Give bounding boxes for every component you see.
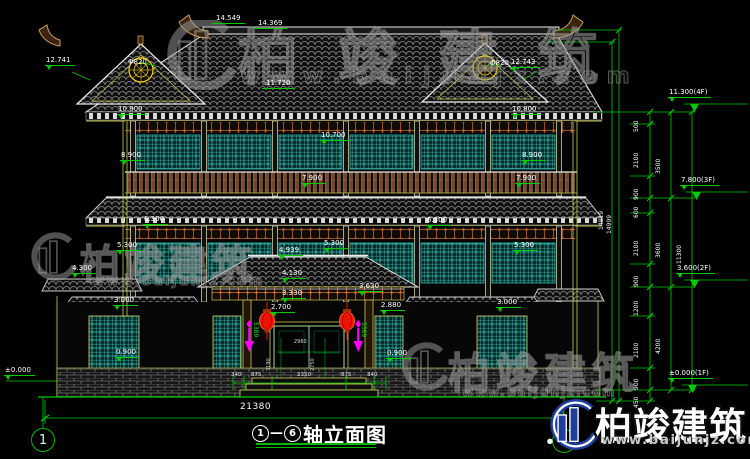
height-dim-label: 500 xyxy=(634,121,640,132)
brand-logo-icon xyxy=(539,392,599,458)
floor-level-label: 3.600(2F) xyxy=(676,264,715,274)
height-dim-label: 3500 xyxy=(656,159,662,174)
elevation-label: 4.130 xyxy=(281,269,306,279)
width-dim-label: 340 xyxy=(231,373,242,379)
elevation-label: 2.880 xyxy=(380,301,405,311)
width-dim-label: 2350 xyxy=(297,373,311,379)
height-dim-label: 900 xyxy=(634,189,640,200)
axis-number: 1 xyxy=(39,433,47,448)
door-dim-label: 2750 xyxy=(311,358,316,371)
title-axis-to: 6 xyxy=(284,425,301,442)
total-height-label: 14819 xyxy=(599,211,605,230)
elevation-label: 5.300 xyxy=(323,239,348,249)
elevation-label: 10.800 xyxy=(511,105,541,115)
section-mark-label: 5389 xyxy=(360,322,366,337)
title-axis-from: 1 xyxy=(252,425,269,442)
brand-url: www.baijunjz.com xyxy=(601,432,750,448)
elevation-label: 0.900 xyxy=(115,348,140,358)
cad-elevation-screenshot: 柏竣建筑 www.baijunjz.com 柏竣建筑 www.baijunjz.… xyxy=(0,0,750,459)
door-dim-label: 3190 xyxy=(267,358,272,371)
floor-level-label: 7.800(3F) xyxy=(680,176,719,186)
height-dim-label: 600 xyxy=(634,207,640,218)
elevation-label: 4.939 xyxy=(278,246,303,256)
height-dim-label: 2100 xyxy=(634,241,640,256)
door-dim-label: 2960 xyxy=(294,340,307,345)
height-dim-label: 11300 xyxy=(677,245,683,264)
railing-3f xyxy=(125,172,577,193)
elevation-label: 2.700 xyxy=(270,303,295,313)
height-dim-label: 2100 xyxy=(634,153,640,168)
wing-roof-right xyxy=(532,289,604,301)
elevation-label: 12.743 xyxy=(510,58,540,68)
height-dim-label: 900 xyxy=(634,379,640,390)
frieze-2f xyxy=(125,228,575,239)
section-mark-label: 5389 xyxy=(252,322,258,337)
brand-block: 柏竣建筑 www.baijunjz.com xyxy=(543,390,750,459)
height-dim-label: 3600 xyxy=(656,243,662,258)
height-dim-label: 4200 xyxy=(656,339,662,354)
floor-3 xyxy=(125,121,577,196)
elevation-label: 5.300 xyxy=(116,241,141,251)
elevation-label: 6.300 xyxy=(426,216,451,226)
elevation-label: 10.800 xyxy=(117,105,147,115)
elevation-label: 3.630 xyxy=(358,282,383,292)
elevation-label: 6.300 xyxy=(143,215,168,225)
elevation-label: 7.900 xyxy=(515,174,540,184)
title-underline xyxy=(256,443,376,445)
title-underline-2 xyxy=(256,447,376,448)
elevation-label: 3.000 xyxy=(113,296,138,306)
axis-bubble-1: 1 xyxy=(31,428,55,452)
ridge-height-label: 14.369 xyxy=(254,19,287,29)
corner-hook-left xyxy=(39,25,60,46)
width-dim-label: 875 xyxy=(341,373,352,379)
elevation-label: 10.700 xyxy=(320,131,350,141)
entrance-steps xyxy=(240,378,378,397)
elevation-label: 3.330 xyxy=(281,289,306,299)
width-dim-label: 340 xyxy=(367,373,378,379)
elevation-label: 8.900 xyxy=(120,151,145,161)
elevation-label: 0.900 xyxy=(386,349,411,359)
height-dim-label: 1200 xyxy=(634,301,640,316)
elevation-label: 4.300 xyxy=(71,264,96,274)
total-width-label: 21380 xyxy=(240,403,271,412)
elevation-label: 5.300 xyxy=(513,241,538,251)
floor-level-label: 11.300(4F) xyxy=(668,88,711,98)
ridge-height-label: 11.720 xyxy=(262,79,295,89)
height-dim-label: 450 xyxy=(634,397,640,408)
elevation-label: 12.741 xyxy=(45,56,75,66)
elevation-label: 7.900 xyxy=(301,174,326,184)
elevation-label: 3.000 xyxy=(496,298,521,308)
ridge-height-label: 14.549 xyxy=(212,14,245,24)
total-height-label: 14999 xyxy=(607,215,613,234)
floor-level-label: ±0.000(1F) xyxy=(668,369,713,379)
title-dash: — xyxy=(270,426,283,441)
diameter-label: Φ820 xyxy=(490,60,509,67)
elevation-label: ±0.000 xyxy=(4,366,35,376)
height-dim-label: 900 xyxy=(634,276,640,287)
elevation-label: 8.900 xyxy=(521,151,546,161)
diameter-label: Φ820 xyxy=(128,59,147,66)
width-dim-label: 875 xyxy=(251,373,262,379)
frieze-3f xyxy=(125,122,575,133)
height-dim-label: 2100 xyxy=(634,343,640,358)
